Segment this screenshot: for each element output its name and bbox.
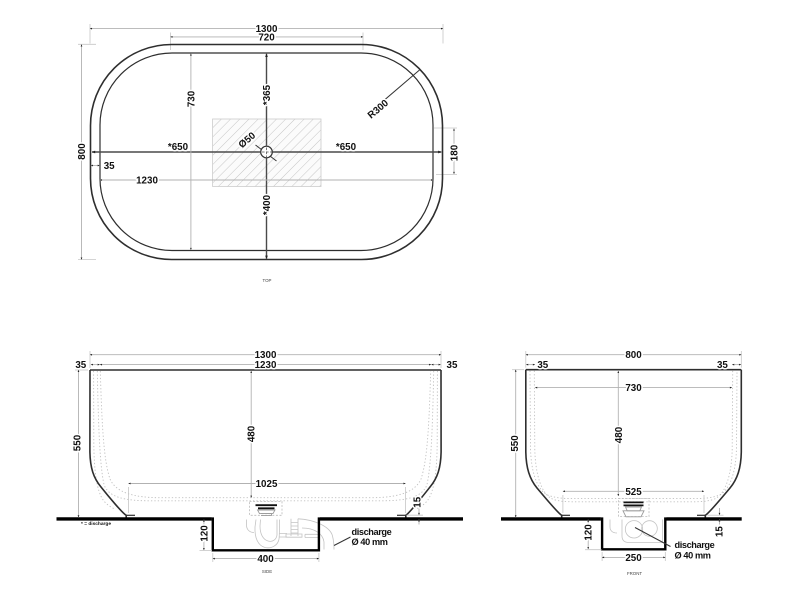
svg-text:*400: *400	[262, 194, 273, 215]
svg-text:Ø 40 mm: Ø 40 mm	[675, 550, 711, 560]
svg-text:35: 35	[717, 360, 728, 371]
svg-text:*365: *365	[262, 84, 273, 105]
svg-text:35: 35	[75, 360, 86, 371]
svg-text:550: 550	[510, 435, 521, 452]
svg-text:1230: 1230	[255, 360, 277, 371]
svg-text:180: 180	[450, 144, 461, 161]
svg-text:*650: *650	[168, 142, 189, 153]
svg-text:800: 800	[77, 143, 88, 160]
svg-text:730: 730	[625, 383, 642, 394]
svg-text:400: 400	[257, 554, 274, 565]
svg-text:discharge: discharge	[352, 527, 392, 537]
svg-text:480: 480	[247, 425, 258, 442]
svg-text:* = discharge: * = discharge	[81, 521, 111, 527]
svg-text:120: 120	[199, 525, 210, 542]
svg-text:Ø 40 mm: Ø 40 mm	[352, 537, 388, 547]
svg-text:250: 250	[625, 553, 642, 564]
svg-text:120: 120	[584, 524, 595, 541]
svg-text:discharge: discharge	[675, 540, 715, 550]
svg-text:35: 35	[537, 360, 548, 371]
svg-text:730: 730	[186, 90, 197, 107]
svg-text:*650: *650	[336, 142, 357, 153]
svg-text:35: 35	[447, 360, 458, 371]
svg-text:525: 525	[625, 487, 642, 498]
svg-text:800: 800	[625, 350, 642, 361]
svg-text:1025: 1025	[256, 479, 278, 490]
svg-text:550: 550	[73, 434, 84, 451]
svg-text:15: 15	[413, 496, 424, 507]
svg-text:15: 15	[715, 526, 726, 537]
svg-text:35: 35	[104, 161, 115, 172]
svg-text:SIDE: SIDE	[262, 569, 272, 574]
svg-text:FRONT: FRONT	[627, 571, 642, 576]
svg-text:1230: 1230	[136, 176, 158, 187]
svg-text:TOP: TOP	[263, 278, 272, 283]
svg-text:480: 480	[614, 426, 625, 443]
svg-text:720: 720	[258, 32, 275, 43]
svg-text:R300: R300	[366, 97, 391, 121]
